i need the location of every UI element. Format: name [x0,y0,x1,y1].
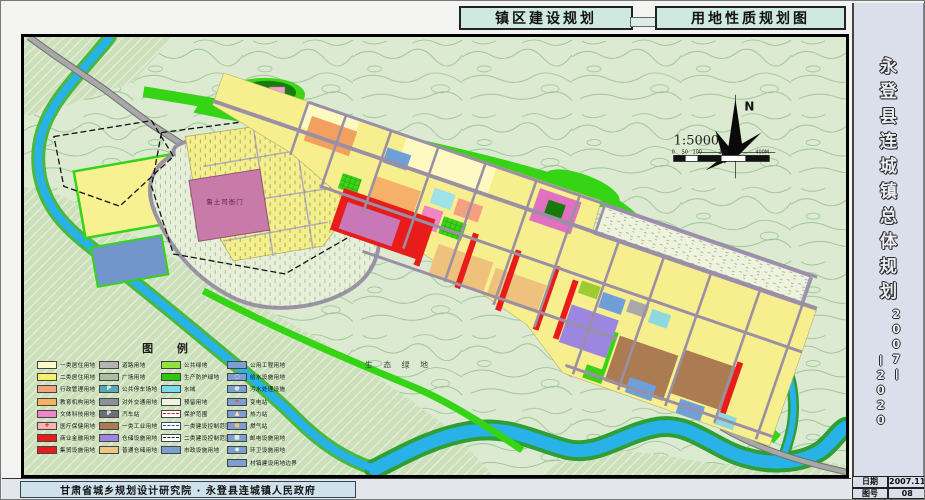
year-dash: — [873,355,888,367]
legend-swatch-symbol: P [100,410,118,418]
legend-item: ■邮电设施用地 [227,432,319,444]
legend-item: 普通仓储用地 [99,444,161,456]
plan-title-char: 县 [854,105,923,130]
legend-item-label: 一类工业用地 [122,422,157,430]
legend-swatch [161,385,181,393]
scale-text: 1:5000 [674,134,720,149]
legend-swatch-symbol: ● [228,385,246,393]
plan-title-char: 永 [854,55,923,80]
legend-swatch [161,373,181,381]
legend-item-label: 邮电设施用地 [250,434,285,442]
legend-item: 公共绿地 [161,359,227,371]
legend-item: 行政管理用地 [37,383,99,395]
legend-item-label: 水域 [184,385,196,393]
legend-swatch [99,434,119,442]
legend-swatch [99,422,119,430]
legend-item: 一类工业用地 [99,420,161,432]
legend-item: 市政设施用地 [161,444,227,456]
plan-title-char: 镇 [854,180,923,205]
legend-item: 水域 [161,383,227,395]
legend-item: P汽车站 [99,408,161,420]
legend-item-label: 预留用地 [184,398,208,406]
legend-item: 仓储设施用地 [99,432,161,444]
legend-column: 公共绿地生产防护绿地水域预留用地保护范围一类建设控制范围二类建设控制范围市政设施… [161,359,227,469]
legend-swatch-symbol: + [38,422,56,430]
legend-item-label: 公用工程用地 [250,361,285,369]
heritage-label: 鲁土司衙门 [206,197,243,206]
legend-item: 生产防护绿地 [161,371,227,383]
year-dash: — [889,369,904,381]
legend-item-label: 燃气站 [250,422,268,430]
legend-item: ●污水处理设施 [227,383,319,395]
legend-item-label: 道路用地 [122,361,146,369]
legend-item: 商业金融用地 [37,432,99,444]
sheet-label-cell: 图号 [852,488,888,500]
legend-item-label: 市政设施用地 [184,446,219,454]
sheet-value-cell: 08 [888,488,925,500]
plan-title-char: 规 [854,255,923,280]
legend-item: 保护范围 [161,408,227,420]
legend-swatch: ◆ [227,446,247,454]
year-digit: 0 [892,322,900,337]
svg-text:200: 200 [718,149,727,155]
legend-swatch-symbol: P [100,385,118,393]
date-value-cell: 2007.11 [888,476,925,488]
legend-item: ▲热力站 [227,408,319,420]
legend-item: 二类居住用地 [37,371,99,383]
legend-swatch-symbol: ● [228,422,246,430]
legend-item: 公用工程用地 [227,359,319,371]
plan-title-char: 登 [854,80,923,105]
legend-item-label: 公共停车场地 [122,385,157,393]
title-block-table: 日期 2007.11 图号 08 [852,476,924,499]
legend-column: 一类居住用地二类居住用地行政管理用地教育机构用地文体科技用地+医疗保健用地商业金… [37,359,99,469]
legend-title: 图 例 [95,340,245,356]
plan-title-vertical: 永登县连城镇总体规划 [854,55,923,305]
legend-swatch [227,361,247,369]
legend-item: 一类建设控制范围 [161,420,227,432]
legend-item-label: 给水设施用地 [250,373,285,381]
plan-title-char: 划 [854,280,923,305]
legend-swatch [161,410,181,418]
legend-item-label: 环卫设施用地 [250,446,285,454]
legend-swatch [37,373,57,381]
legend-item: +变电站 [227,396,319,408]
legend-swatch: + [37,422,57,430]
year-digit: 2 [877,398,885,413]
legend-item-label: 普通仓储用地 [122,446,157,454]
legend-swatch-symbol: ◆ [228,446,246,454]
legend-item-label: 一类建设控制范围 [184,422,231,430]
legend-item-label: 热力站 [250,410,268,418]
legend-swatch-symbol: ■ [228,434,246,442]
year-2007-column: 2007— [891,307,903,428]
legend-swatch [161,446,181,454]
title-landuse-map: 用地性质规划图 [655,6,846,30]
footer-bar: 甘肃省城乡规划设计研究院 · 永登县连城镇人民政府 [2,478,851,500]
legend-swatch [37,434,57,442]
legend-swatch: ○ [227,373,247,381]
legend-item: 集贸设施用地 [37,444,99,456]
legend-swatch [37,410,57,418]
legend-swatch: ▲ [227,410,247,418]
legend-item: 广场用地 [99,371,161,383]
legend-swatch [227,459,247,467]
legend-swatch: P [99,410,119,418]
legend-item: +医疗保健用地 [37,420,99,432]
svg-text:400M: 400M [755,149,769,155]
legend-item-label: 保护范围 [184,410,208,418]
planning-sheet: 镇区建设规划 用地性质规划图 [0,0,925,500]
legend-swatch [161,434,181,442]
legend-swatch: ● [227,422,247,430]
date-label-cell: 日期 [852,476,888,488]
legend-swatch: + [227,398,247,406]
year-digit: 2 [877,368,885,383]
legend-item: 对外交通用地 [99,396,161,408]
plan-title-char: 总 [854,205,923,230]
year-digit: 0 [877,413,885,428]
legend-swatch [99,446,119,454]
legend-swatch: ■ [227,434,247,442]
plan-title-char: 体 [854,230,923,255]
legend-swatch: P [99,385,119,393]
legend-item: 村镇建设用地边界 [227,457,319,469]
legend-item: ◆环卫设施用地 [227,444,319,456]
plan-title-char: 城 [854,155,923,180]
title-connector [630,17,658,27]
svg-text:50: 50 [682,149,688,155]
legend-item: P公共停车场地 [99,383,161,395]
year-digit: 7 [892,352,900,367]
legend-swatch [99,398,119,406]
legend-item-label: 文体科技用地 [60,410,95,418]
map-frame: N 1:5000 0 50 100 200 400M 鲁土司衙门 生 态 绿 地 [21,34,849,478]
legend-item-label: 医疗保健用地 [60,422,95,430]
legend-item-label: 二类居住用地 [60,373,95,381]
legend-item: 二类建设控制范围 [161,432,227,444]
legend-item-label: 村镇建设用地边界 [250,459,297,467]
legend-item-label: 集贸设施用地 [60,446,95,454]
legend-swatch: ● [227,385,247,393]
legend-item: 预留用地 [161,396,227,408]
legend-item-label: 广场用地 [122,373,146,381]
legend-swatch-symbol: ○ [228,373,246,381]
year-2020-column: —2020 [875,353,887,428]
legend-item-label: 一类居住用地 [60,361,95,369]
legend-item-label: 生产防护绿地 [184,373,219,381]
title-construction-plan: 镇区建设规划 [459,6,633,30]
legend-item-label: 变电站 [250,398,268,406]
legend-column: 公用工程用地○给水设施用地●污水处理设施+变电站▲热力站●燃气站■邮电设施用地◆… [227,359,319,469]
legend-swatch [37,361,57,369]
legend-swatch [99,373,119,381]
legend-item: 一类居住用地 [37,359,99,371]
legend-swatch [37,446,57,454]
legend-item: 教育机构用地 [37,396,99,408]
year-digit: 2 [892,307,900,322]
plan-title-char: 连 [854,130,923,155]
legend-swatch [161,361,181,369]
sidebar-title-panel: 永登县连城镇总体规划 —2020 2007— 日期 2007.11 图号 08 [852,3,924,499]
year-digit: 0 [877,383,885,398]
legend: 图 例 一类居住用地二类居住用地行政管理用地教育机构用地文体科技用地+医疗保健用… [37,340,323,469]
legend-item-label: 行政管理用地 [60,385,95,393]
legend-item-label: 对外交通用地 [122,398,157,406]
legend-item-label: 二类建设控制范围 [184,434,231,442]
north-label: N [744,100,754,114]
legend-item: 道路用地 [99,359,161,371]
scale-tick-labels: 0 50 100 200 400M [672,149,769,155]
legend-swatch [161,422,181,430]
plan-years: —2020 2007— [854,307,923,428]
legend-item: ○给水设施用地 [227,371,319,383]
legend-swatch-symbol: ▲ [228,410,246,418]
legend-swatch [99,361,119,369]
legend-item-label: 仓储设施用地 [122,434,157,442]
year-digit: 0 [892,337,900,352]
legend-column: 道路用地广场用地P公共停车场地对外交通用地P汽车站一类工业用地仓储设施用地普通仓… [99,359,161,469]
legend-item-label: 教育机构用地 [60,398,95,406]
legend-item-label: 商业金融用地 [60,434,95,442]
legend-swatch [37,398,57,406]
legend-swatch [161,398,181,406]
svg-text:0: 0 [672,149,675,155]
legend-item-label: 公共绿地 [184,361,208,369]
legend-item: 文体科技用地 [37,408,99,420]
legend-swatch [37,385,57,393]
eco-label: 生 态 绿 地 [365,359,432,369]
institute-box: 甘肃省城乡规划设计研究院 · 永登县连城镇人民政府 [20,481,356,498]
legend-item-label: 污水处理设施 [250,385,285,393]
legend-item: ●燃气站 [227,420,319,432]
legend-swatch-symbol: + [228,398,246,406]
legend-item-label: 汽车站 [122,410,140,418]
svg-text:100: 100 [693,149,702,155]
